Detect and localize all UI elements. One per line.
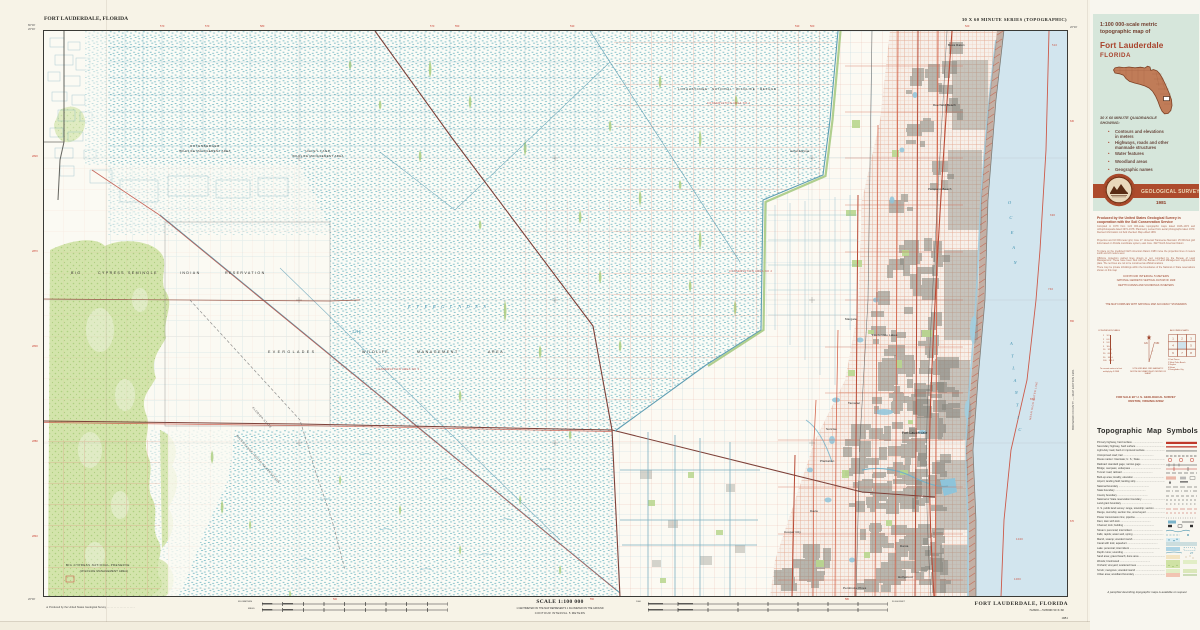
svg-text:CONSERVATION AREA NO 3: CONSERVATION AREA NO 3 bbox=[376, 367, 420, 371]
svg-text:Lauderdale Lakes: Lauderdale Lakes bbox=[872, 333, 898, 337]
svg-text:Davie: Davie bbox=[810, 509, 818, 513]
svg-text:Pompano Beach: Pompano Beach bbox=[928, 187, 952, 191]
svg-text:4: 4 bbox=[1172, 344, 1174, 348]
svg-text:3: 3 bbox=[1190, 336, 1192, 340]
svg-text:WILDLIFE MANAGEMENT AREA: WILDLIFE MANAGEMENT AREA bbox=[179, 149, 231, 153]
svg-text:690: 690 bbox=[1050, 213, 1056, 217]
svg-text:Dania: Dania bbox=[900, 544, 909, 548]
svg-text:MANAGEMENT: MANAGEMENT bbox=[417, 350, 459, 354]
svg-text:WILDLIFE MANAGEMENT AREA: WILDLIFE MANAGEMENT AREA bbox=[292, 154, 344, 158]
svg-text:REFUGE: REFUGE bbox=[760, 87, 777, 91]
svg-text:A: A bbox=[1013, 378, 1017, 383]
svg-text:THE: THE bbox=[352, 330, 362, 334]
svg-text:WILDLIFE: WILDLIFE bbox=[362, 350, 389, 354]
svg-text:510: 510 bbox=[1052, 43, 1058, 47]
svg-text:6: 6 bbox=[1172, 351, 1174, 355]
svg-text:1: 1 bbox=[1172, 336, 1174, 340]
svg-text:C: C bbox=[1018, 427, 1021, 432]
svg-text:CONSERVATION AREA NO 1: CONSERVATION AREA NO 1 bbox=[707, 101, 751, 105]
svg-text:WILDLIFE: WILDLIFE bbox=[736, 87, 755, 91]
svg-text:860: 860 bbox=[1030, 397, 1036, 401]
svg-text:AREA: AREA bbox=[488, 350, 504, 354]
svg-text:Boca Raton: Boca Raton bbox=[948, 43, 965, 47]
svg-text:EVERGLADES: EVERGLADES bbox=[268, 350, 316, 354]
svg-text:1060: 1060 bbox=[1014, 577, 1021, 581]
svg-text:RESERVATION: RESERVATION bbox=[225, 271, 266, 275]
svg-text:CONSERVATION AREA NO 2: CONSERVATION AREA NO 2 bbox=[729, 269, 773, 273]
svg-text:HOLEY LAND: HOLEY LAND bbox=[306, 149, 331, 153]
svg-text:SEMINOLE: SEMINOLE bbox=[128, 271, 158, 275]
svg-text:A: A bbox=[1009, 341, 1013, 346]
svg-text:Sunrise: Sunrise bbox=[826, 427, 837, 431]
svg-text:ROTENBERGER: ROTENBERGER bbox=[190, 144, 220, 148]
svg-text:Plantation: Plantation bbox=[820, 459, 835, 463]
svg-text:BIG CYPRESS NATIONAL PRESERVE: BIG CYPRESS NATIONAL PRESERVE bbox=[66, 563, 130, 567]
svg-text:1040: 1040 bbox=[1016, 537, 1023, 541]
svg-text:Margate: Margate bbox=[845, 317, 857, 321]
svg-text:2°: 2° bbox=[1152, 351, 1154, 353]
svg-text:5: 5 bbox=[1190, 344, 1192, 348]
svg-text:Coral Springs: Coral Springs bbox=[790, 149, 810, 153]
svg-text:A: A bbox=[1011, 245, 1015, 250]
svg-text:CYPRESS: CYPRESS bbox=[98, 271, 125, 275]
svg-text:Cooper City: Cooper City bbox=[784, 530, 801, 534]
svg-text:INDIAN: INDIAN bbox=[180, 271, 201, 275]
svg-text:NATIONAL: NATIONAL bbox=[712, 87, 732, 91]
svg-text:GN: GN bbox=[1144, 342, 1148, 345]
svg-text:EVERGLADES: EVERGLADES bbox=[407, 304, 491, 309]
svg-text:E: E bbox=[1010, 230, 1014, 235]
svg-text:8: 8 bbox=[1190, 351, 1192, 355]
svg-text:Pembroke Pines: Pembroke Pines bbox=[843, 586, 867, 590]
svg-text:LOXAHATCHEE: LOXAHATCHEE bbox=[678, 87, 708, 91]
svg-text:Tamarac: Tamarac bbox=[848, 401, 861, 405]
svg-text:C: C bbox=[1009, 215, 1012, 220]
svg-text:MN: MN bbox=[1156, 342, 1160, 345]
svg-text:Fort Lauderdale: Fort Lauderdale bbox=[902, 431, 928, 435]
svg-text:Hollywood: Hollywood bbox=[898, 575, 913, 579]
svg-text:BIG: BIG bbox=[71, 271, 81, 275]
svg-text:740: 740 bbox=[1048, 287, 1054, 291]
svg-text:(WILDLIFE MANAGEMENT AREA): (WILDLIFE MANAGEMENT AREA) bbox=[80, 569, 128, 573]
svg-text:7: 7 bbox=[1181, 351, 1183, 355]
svg-text:Deerfield Beach: Deerfield Beach bbox=[933, 103, 956, 107]
svg-text:L: L bbox=[1011, 366, 1015, 371]
svg-text:2: 2 bbox=[1181, 336, 1183, 340]
